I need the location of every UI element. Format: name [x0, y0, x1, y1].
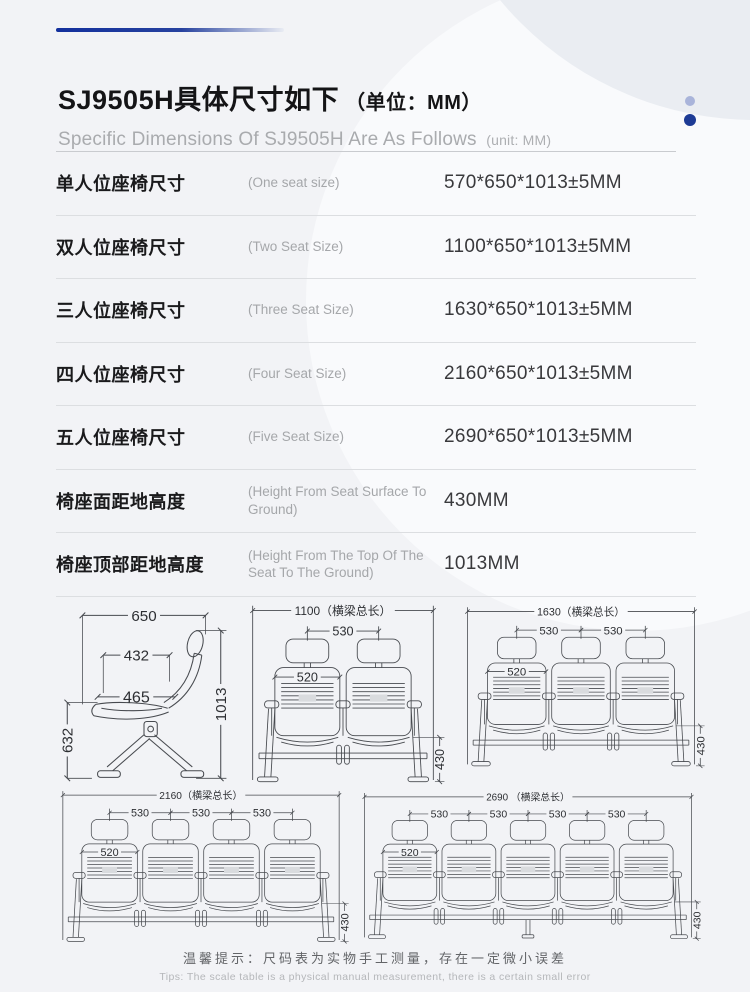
row-label-cn: 五人位座椅尺寸: [56, 424, 248, 450]
footer-tip-en: Tips: The scale table is a physical manu…: [0, 971, 750, 983]
drawing-front-5-seat: 2690 （横梁总长）530530530530520430: [354, 789, 702, 944]
row-label-en: (Four Seat Size): [248, 365, 444, 383]
header: SJ9505H具体尺寸如下（单位：MM） Specific Dimensions…: [58, 78, 698, 151]
svg-text:632: 632: [60, 728, 77, 753]
page-subtitle: Specific Dimensions Of SJ9505H Are As Fo…: [58, 129, 698, 151]
row-label-cn: 椅座面距地高度: [56, 488, 248, 514]
svg-text:432: 432: [124, 648, 149, 665]
svg-text:2690 （横梁总长）: 2690 （横梁总长）: [486, 790, 570, 803]
footer-tip-cn: 温馨提示：尺码表为实物手工测量，存在一定微小误差: [0, 948, 750, 967]
svg-text:530: 530: [539, 625, 558, 637]
svg-text:1630（横梁总长）: 1630（横梁总长）: [537, 605, 625, 618]
svg-text:430: 430: [695, 736, 706, 755]
row-label-cn: 三人位座椅尺寸: [56, 297, 248, 323]
accent-line: [56, 28, 284, 32]
row-value: 1100*650*1013±5MM: [444, 236, 696, 258]
svg-text:430: 430: [433, 749, 446, 770]
drawing-side-view: 6504324656321013: [54, 604, 234, 786]
row-label-cn: 双人位座椅尺寸: [56, 234, 248, 260]
svg-text:520: 520: [297, 671, 318, 685]
page-title: SJ9505H具体尺寸如下（单位：MM）: [58, 78, 698, 117]
row-label-en: (Two Seat Size): [248, 238, 444, 256]
table-row: 椅座顶部距地高度 (Height From The Top Of The Sea…: [56, 533, 696, 597]
drawing-front-4-seat: 2160（横梁总长）530530530520430: [52, 787, 350, 947]
svg-text:1100（横梁总长）: 1100（横梁总长）: [295, 604, 392, 618]
svg-text:520: 520: [101, 847, 119, 859]
row-label-en: (Five Seat Size): [248, 428, 444, 446]
drawing-front-3-seat: 1630（横梁总长）530530520430: [456, 603, 706, 772]
page-subtitle-en: Specific Dimensions Of SJ9505H Are As Fo…: [58, 129, 477, 150]
footer: 温馨提示：尺码表为实物手工测量，存在一定微小误差 Tips: The scale…: [0, 948, 750, 983]
row-label-en: (Height From The Top Of The Seat To The …: [248, 547, 444, 582]
page-title-cn: SJ9505H具体尺寸如下: [58, 85, 339, 115]
svg-text:530: 530: [549, 809, 567, 821]
row-label-cn: 单人位座椅尺寸: [56, 170, 248, 196]
page-title-unit: （单位：MM）: [345, 92, 482, 114]
row-label-en: (Height From Seat Surface To Ground): [248, 483, 444, 518]
table-row: 单人位座椅尺寸 (One seat size) 570*650*1013±5MM: [56, 152, 696, 216]
row-label-en: (One seat size): [248, 174, 444, 192]
table-row: 椅座面距地高度 (Height From Seat Surface To Gro…: [56, 470, 696, 534]
svg-text:530: 530: [131, 808, 149, 820]
svg-text:2160（横梁总长）: 2160（横梁总长）: [159, 789, 242, 802]
dimension-table: 单人位座椅尺寸 (One seat size) 570*650*1013±5MM…: [56, 152, 696, 597]
page-subtitle-unit: (unit: MM): [486, 132, 551, 148]
svg-text:465: 465: [123, 689, 150, 707]
svg-text:520: 520: [507, 667, 526, 679]
svg-text:530: 530: [431, 809, 449, 821]
row-value: 1630*650*1013±5MM: [444, 299, 696, 321]
svg-text:530: 530: [490, 809, 508, 821]
svg-text:430: 430: [339, 913, 350, 931]
row-label-cn: 椅座顶部距地高度: [56, 551, 248, 577]
svg-text:530: 530: [192, 808, 210, 820]
svg-text:430: 430: [692, 911, 702, 929]
row-value: 2690*650*1013±5MM: [444, 426, 696, 448]
svg-text:530: 530: [253, 808, 271, 820]
row-value: 430MM: [444, 490, 696, 512]
row-value: 2160*650*1013±5MM: [444, 363, 696, 385]
table-row: 双人位座椅尺寸 (Two Seat Size) 1100*650*1013±5M…: [56, 216, 696, 280]
svg-text:1013: 1013: [213, 688, 230, 722]
svg-text:650: 650: [131, 608, 156, 625]
row-label-cn: 四人位座椅尺寸: [56, 361, 248, 387]
svg-text:530: 530: [604, 625, 623, 637]
row-label-en: (Three Seat Size): [248, 301, 444, 319]
table-row: 五人位座椅尺寸 (Five Seat Size) 2690*650*1013±5…: [56, 406, 696, 470]
row-value: 1013MM: [444, 553, 696, 575]
drawing-front-2-seat: 1100（横梁总长）530520430: [240, 601, 446, 788]
svg-text:520: 520: [401, 847, 419, 859]
svg-text:530: 530: [608, 809, 626, 821]
spec-sheet-page: SJ9505H具体尺寸如下（单位：MM） Specific Dimensions…: [0, 0, 750, 992]
table-row: 三人位座椅尺寸 (Three Seat Size) 1630*650*1013±…: [56, 279, 696, 343]
svg-text:530: 530: [332, 625, 353, 639]
row-value: 570*650*1013±5MM: [444, 172, 696, 194]
table-row: 四人位座椅尺寸 (Four Seat Size) 2160*650*1013±5…: [56, 343, 696, 407]
